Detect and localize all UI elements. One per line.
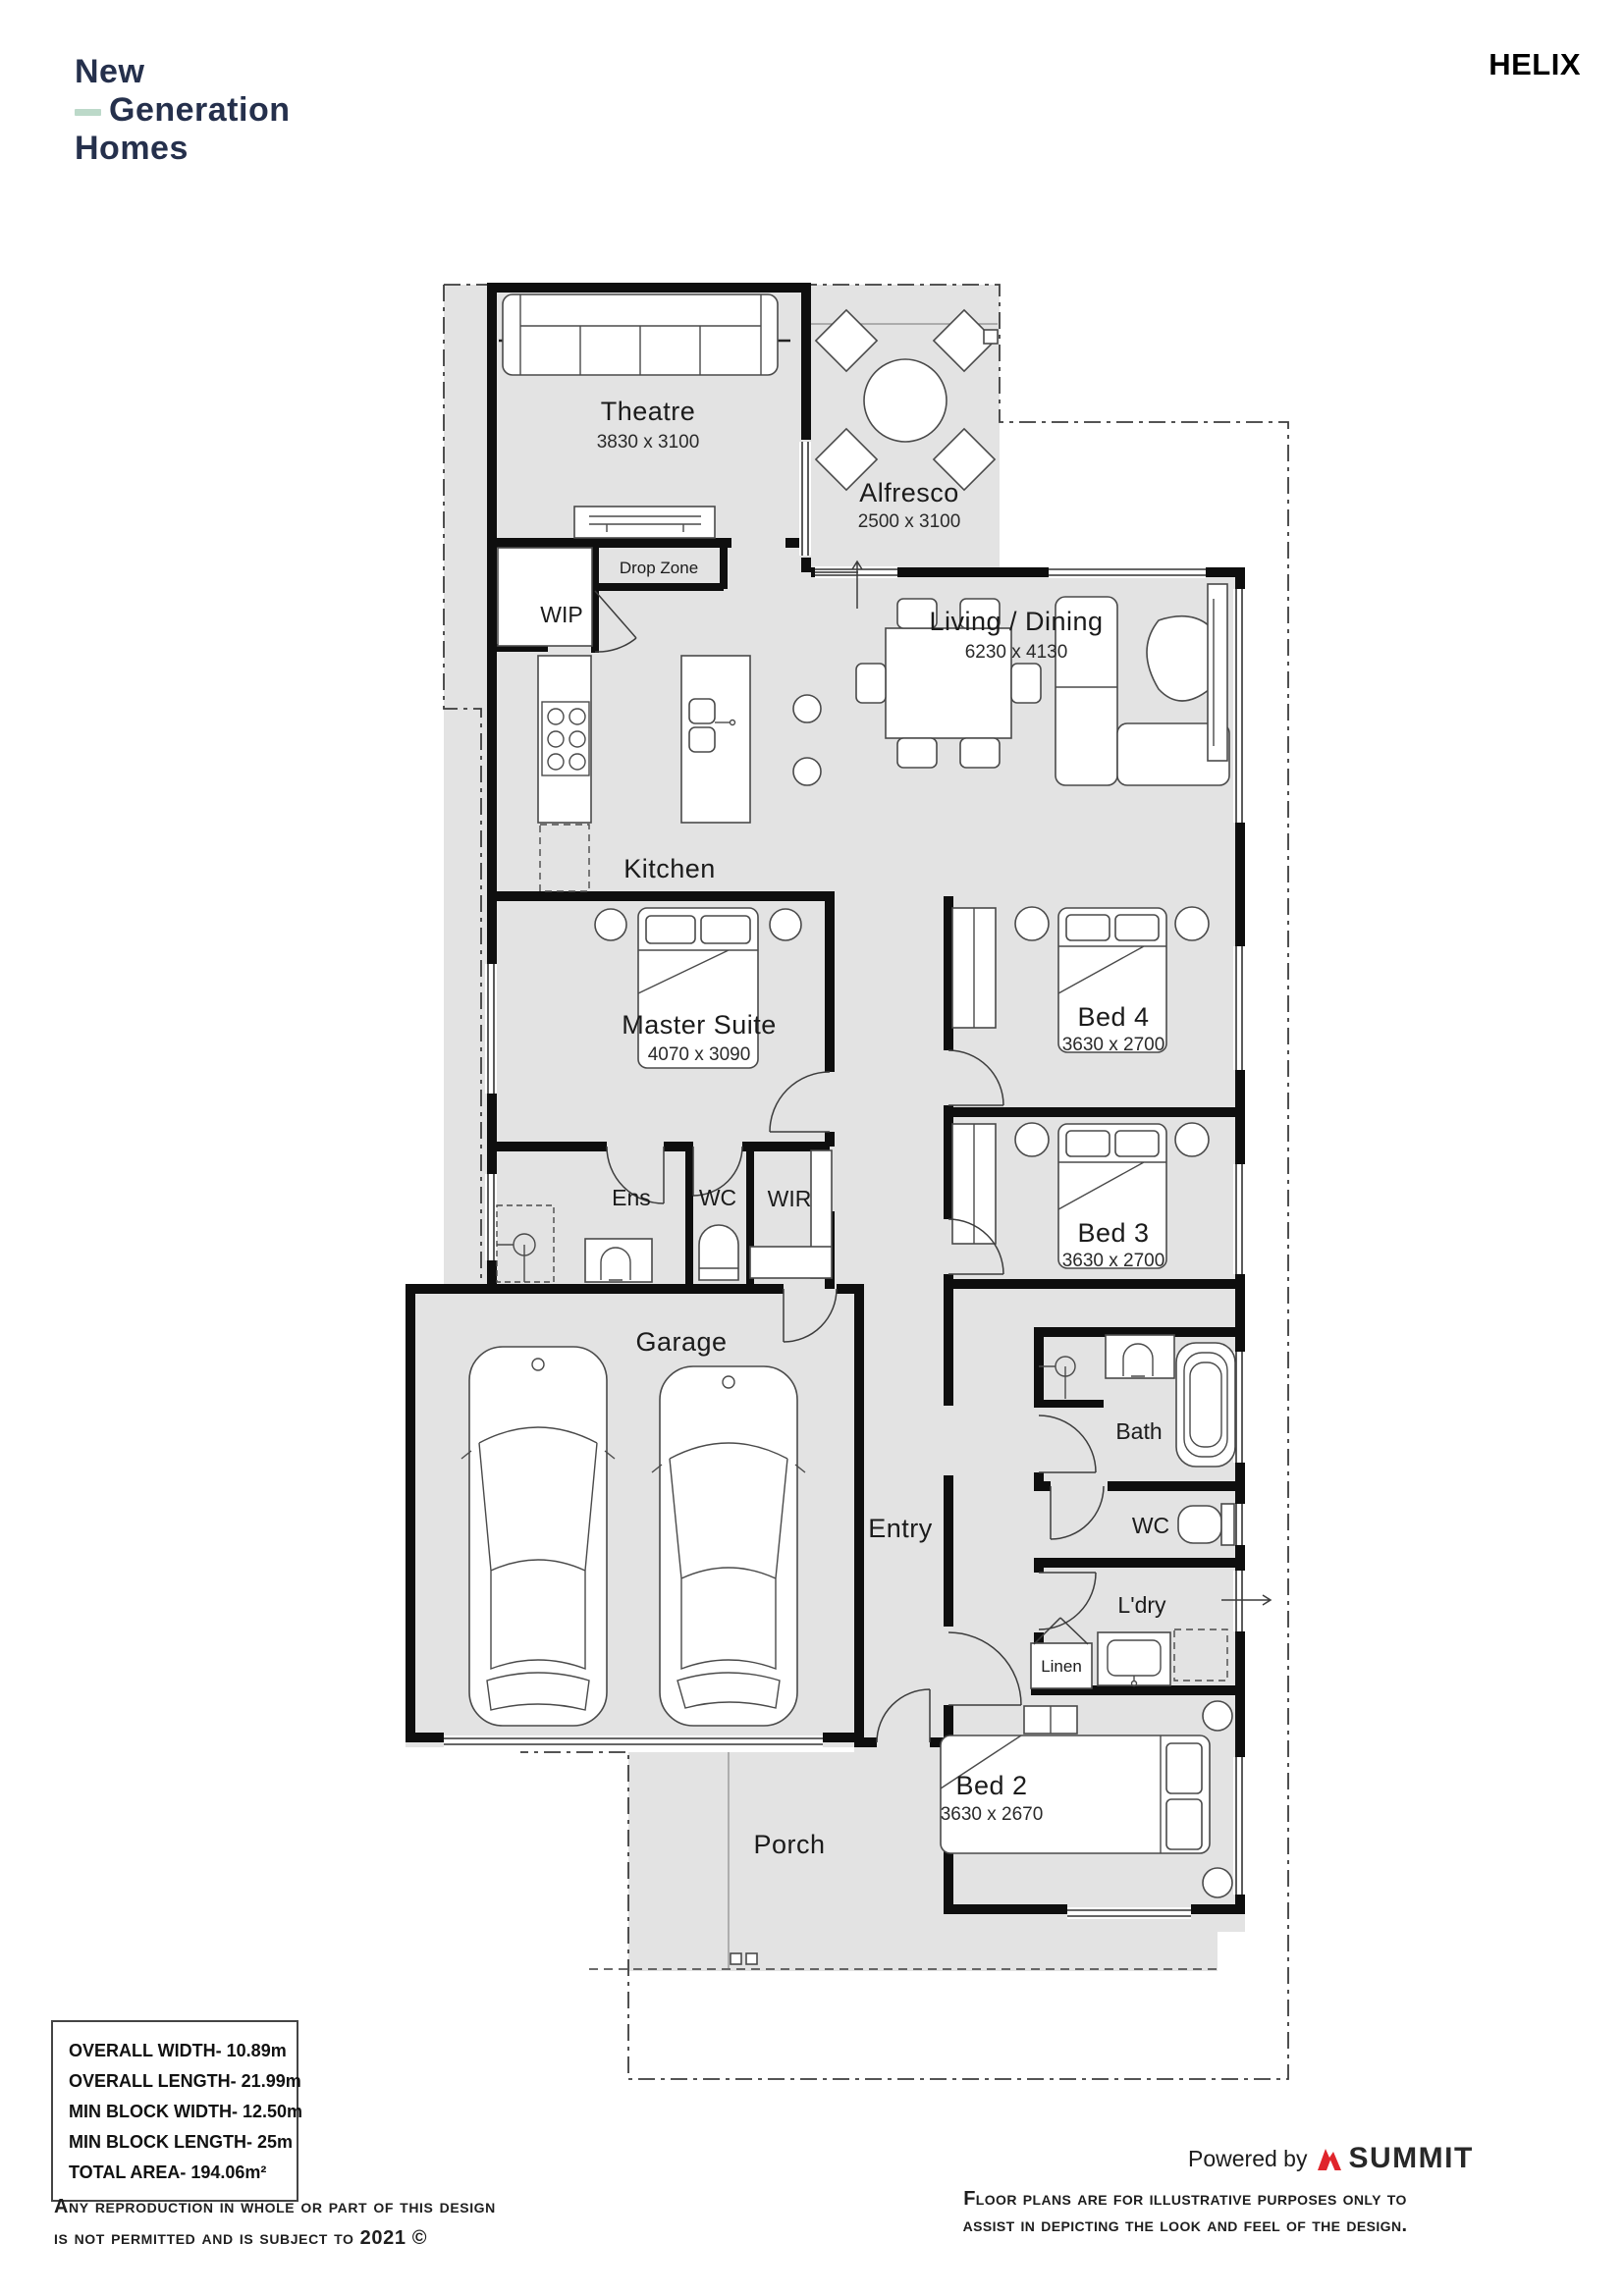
room-label-wir: WIR [768,1186,812,1211]
window-bed2 [1233,1757,1245,1895]
room-label-living: Living / Dining [929,607,1103,636]
room-label-bed4: Bed 4 [1077,1002,1149,1032]
room-label-ens: Ens [612,1185,651,1210]
room-label-wc2: WC [1132,1513,1169,1538]
powered-by: Powered by SUMMIT [1188,2142,1474,2175]
room-label-alfresco: Alfresco [859,478,959,507]
room-label-porch: Porch [753,1830,825,1859]
disclaimer-line-1: Floor plans are for illustrative purpose… [954,2186,1416,2213]
spec-overall-width: OVERALL WIDTH- 10.89m [69,2036,297,2066]
room-label-wip: WIP [540,602,582,627]
room-label-bed2: Bed 2 [955,1771,1027,1800]
car-icon [461,1347,615,1726]
copyright-note: Any reproduction in whole or part of thi… [54,2191,496,2254]
room-label-ldry: L'dry [1117,1592,1166,1618]
room-dims-master: 4070 x 3090 [648,1044,751,1065]
window-bed3 [1233,1164,1245,1274]
room-dims-bed3: 3630 x 2700 [1062,1251,1165,1271]
toilet-master-icon [699,1225,738,1280]
room-label-kitchen: Kitchen [623,854,716,883]
car-icon-2 [652,1366,805,1726]
spec-block-width: MIN BLOCK WIDTH- 12.50m [69,2097,297,2127]
room-label-garage: Garage [635,1327,727,1357]
tv-unit-icon [574,507,715,538]
copyright-line-1: Any reproduction in whole or part of thi… [54,2191,496,2222]
laundry-trough-icon [1098,1632,1170,1686]
room-label-bath: Bath [1115,1418,1162,1444]
summit-logo-icon [1315,2146,1344,2171]
summit-brand-name: SUMMIT [1348,2142,1473,2175]
living-tv-unit-icon [1208,584,1227,761]
bathtub-icon [1176,1343,1235,1467]
room-label-dropzone: Drop Zone [620,559,698,577]
room-label-entry: Entry [868,1514,933,1543]
window-master [485,964,497,1094]
floor-plan-svg: Theatre 3830 x 3100 Alfresco 2500 x 3100… [0,0,1624,2296]
bath-vanity-icon [1106,1335,1174,1378]
copyright-line-2: is not permitted and is subject to 2021 … [54,2222,496,2254]
sliding-door-laundry [1233,1571,1245,1631]
spec-box: OVERALL WIDTH- 10.89m OVERALL LENGTH- 21… [51,2020,298,2202]
spec-block-length: MIN BLOCK LENGTH- 25m [69,2127,297,2158]
window-theatre [799,442,811,556]
floorplan-page: New Generation Homes HELIX [0,0,1624,2296]
window-bed2-bottom [1067,1907,1191,1919]
room-dims-alfresco: 2500 x 3100 [858,511,961,532]
window-living-top [1049,566,1206,578]
room-dims-living: 6230 x 4130 [965,642,1068,663]
window-bed4 [1233,946,1245,1070]
toilet-icon [1178,1504,1234,1545]
garage-door [444,1735,823,1747]
ensuite-vanity-icon [585,1239,652,1282]
spec-total-area: TOTAL AREA- 194.06m² [69,2158,297,2188]
room-dims-bed2: 3630 x 2670 [941,1804,1044,1825]
room-label-bed3: Bed 3 [1077,1218,1149,1248]
window-living-right [1233,589,1245,823]
cooktop-icon [538,656,591,823]
sliding-door-alfresco [815,566,897,578]
room-dims-theatre: 3830 x 3100 [597,432,700,453]
spec-overall-length: OVERALL LENGTH- 21.99m [69,2066,297,2097]
room-dims-bed4: 3630 x 2700 [1062,1035,1165,1055]
disclaimer-note: Floor plans are for illustrative purpose… [954,2186,1416,2239]
sofa-icon [503,294,778,375]
room-label-linen: Linen [1041,1657,1082,1676]
room-label-wc1: WC [699,1185,736,1210]
window-ens [485,1174,497,1260]
disclaimer-line-2: assist in depicting the look and feel of… [954,2213,1416,2239]
wip-pantry-icon [498,548,592,646]
powered-by-label: Powered by [1188,2146,1307,2172]
room-label-theatre: Theatre [601,397,696,426]
room-label-master: Master Suite [622,1010,777,1040]
window-wc [1233,1504,1245,1545]
